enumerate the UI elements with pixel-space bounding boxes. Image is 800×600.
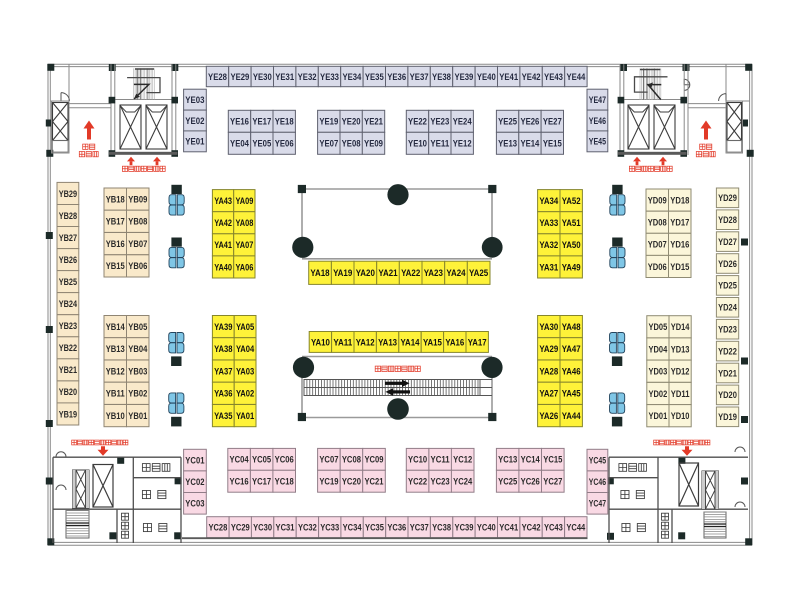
svg-text:YE04: YE04: [230, 139, 250, 149]
svg-text:YA50: YA50: [562, 240, 581, 250]
svg-text:YD23: YD23: [718, 325, 737, 335]
svg-text:YA42: YA42: [214, 218, 232, 228]
svg-text:YE18: YE18: [275, 117, 294, 127]
svg-text:YC36: YC36: [387, 523, 406, 533]
svg-text:YD17: YD17: [670, 218, 689, 228]
svg-text:YE16: YE16: [230, 117, 249, 127]
svg-text:YB25: YB25: [59, 277, 77, 287]
svg-text:YE24: YE24: [453, 117, 473, 127]
svg-text:YC11: YC11: [431, 455, 450, 465]
svg-text:YE30: YE30: [253, 72, 272, 82]
svg-text:YE03: YE03: [185, 95, 204, 105]
svg-text:YD10: YD10: [671, 411, 690, 421]
svg-text:YE17: YE17: [252, 117, 271, 127]
svg-text:YE37: YE37: [410, 72, 429, 82]
svg-text:YC30: YC30: [253, 523, 272, 533]
svg-text:YA02: YA02: [236, 389, 254, 399]
svg-text:YA07: YA07: [236, 240, 254, 250]
svg-text:YD14: YD14: [671, 322, 690, 332]
svg-text:YC04: YC04: [230, 455, 250, 465]
svg-text:YC28: YC28: [208, 523, 227, 533]
svg-text:YA34: YA34: [539, 196, 559, 206]
svg-text:YE10: YE10: [408, 139, 427, 149]
svg-text:YC29: YC29: [231, 523, 250, 533]
svg-text:YD26: YD26: [718, 259, 737, 269]
svg-text:YC25: YC25: [498, 477, 517, 487]
svg-text:YA45: YA45: [562, 389, 581, 399]
svg-text:YE31: YE31: [275, 72, 294, 82]
svg-text:YC22: YC22: [408, 477, 427, 487]
svg-text:YA52: YA52: [562, 196, 581, 206]
svg-text:YE39: YE39: [454, 72, 473, 82]
svg-text:YC19: YC19: [319, 477, 338, 487]
svg-text:YB28: YB28: [59, 211, 77, 221]
svg-text:YC47: YC47: [589, 499, 606, 509]
svg-text:YE28: YE28: [208, 72, 227, 82]
svg-text:YB29: YB29: [59, 189, 77, 199]
svg-text:YB14: YB14: [106, 322, 126, 332]
svg-text:YD21: YD21: [718, 368, 737, 378]
svg-text:YC23: YC23: [431, 477, 450, 487]
svg-text:YD13: YD13: [671, 344, 690, 354]
svg-text:YB04: YB04: [128, 344, 148, 354]
svg-text:YA12: YA12: [356, 337, 375, 347]
svg-text:YC44: YC44: [566, 523, 586, 533]
svg-text:YE22: YE22: [408, 117, 427, 127]
svg-text:YB06: YB06: [128, 261, 147, 271]
svg-text:YC33: YC33: [320, 523, 339, 533]
svg-text:YD08: YD08: [648, 218, 667, 228]
svg-text:YA11: YA11: [333, 337, 352, 347]
svg-text:YB26: YB26: [59, 255, 77, 265]
svg-text:YD11: YD11: [671, 389, 690, 399]
svg-text:YC31: YC31: [276, 523, 295, 533]
svg-text:YA38: YA38: [214, 344, 232, 354]
svg-text:YA21: YA21: [378, 268, 397, 278]
svg-text:YC39: YC39: [455, 523, 474, 533]
svg-text:YA23: YA23: [424, 268, 443, 278]
svg-text:YE45: YE45: [589, 137, 606, 147]
svg-text:YE09: YE09: [364, 139, 383, 149]
svg-text:YA09: YA09: [236, 196, 254, 206]
svg-text:YE06: YE06: [275, 139, 294, 149]
svg-text:YA26: YA26: [539, 411, 558, 421]
svg-text:YA27: YA27: [539, 389, 558, 399]
svg-text:YE02: YE02: [185, 116, 204, 126]
svg-text:YC41: YC41: [499, 523, 518, 533]
svg-text:YC16: YC16: [230, 477, 249, 487]
svg-text:YC02: YC02: [185, 477, 204, 487]
svg-text:YA29: YA29: [539, 344, 558, 354]
svg-text:YD16: YD16: [670, 240, 689, 250]
svg-text:YA06: YA06: [236, 262, 254, 272]
svg-text:YA24: YA24: [446, 268, 466, 278]
svg-text:YB15: YB15: [106, 261, 125, 271]
svg-text:YA33: YA33: [539, 218, 558, 228]
svg-text:YD01: YD01: [649, 411, 668, 421]
svg-text:YB03: YB03: [128, 366, 147, 376]
svg-text:YA18: YA18: [310, 268, 329, 278]
svg-text:YA43: YA43: [214, 196, 232, 206]
svg-text:YC08: YC08: [342, 455, 361, 465]
svg-text:YD06: YD06: [648, 262, 667, 272]
svg-text:YB01: YB01: [128, 411, 147, 421]
svg-text:YA31: YA31: [539, 262, 558, 272]
svg-text:YE25: YE25: [498, 117, 517, 127]
svg-text:YC42: YC42: [522, 523, 541, 533]
svg-text:YD27: YD27: [718, 237, 737, 247]
svg-text:YC38: YC38: [432, 523, 451, 533]
svg-text:YA48: YA48: [562, 322, 581, 332]
svg-text:YC24: YC24: [453, 477, 473, 487]
svg-text:YB21: YB21: [59, 365, 77, 375]
svg-text:YA28: YA28: [539, 366, 558, 376]
svg-text:YB08: YB08: [128, 217, 147, 227]
svg-text:YC40: YC40: [477, 523, 496, 533]
svg-text:YB18: YB18: [106, 195, 125, 205]
svg-text:YB20: YB20: [59, 387, 77, 397]
svg-text:YB13: YB13: [106, 344, 125, 354]
svg-text:YA32: YA32: [539, 240, 558, 250]
svg-text:YC13: YC13: [498, 455, 517, 465]
svg-text:YE44: YE44: [566, 72, 586, 82]
svg-text:YA01: YA01: [236, 411, 254, 421]
svg-text:YE42: YE42: [522, 72, 541, 82]
svg-text:YC03: YC03: [185, 499, 204, 509]
svg-text:YE38: YE38: [432, 72, 451, 82]
svg-text:YD28: YD28: [718, 215, 737, 225]
svg-text:YA17: YA17: [468, 337, 487, 347]
svg-text:YA25: YA25: [469, 268, 488, 278]
svg-text:YD07: YD07: [648, 240, 667, 250]
svg-text:YC15: YC15: [543, 455, 562, 465]
svg-text:YC01: YC01: [185, 455, 204, 465]
svg-text:YD04: YD04: [649, 344, 668, 354]
svg-text:YD29: YD29: [718, 193, 737, 203]
svg-text:YB27: YB27: [59, 233, 77, 243]
svg-text:YA10: YA10: [311, 337, 330, 347]
svg-text:YA51: YA51: [562, 218, 581, 228]
svg-text:YA35: YA35: [214, 411, 232, 421]
svg-text:YC07: YC07: [319, 455, 338, 465]
svg-text:YE35: YE35: [365, 72, 384, 82]
svg-text:YA44: YA44: [562, 411, 582, 421]
svg-text:YE40: YE40: [477, 72, 496, 82]
svg-text:YD20: YD20: [718, 390, 737, 400]
svg-text:YC35: YC35: [365, 523, 384, 533]
svg-text:YA03: YA03: [236, 366, 254, 376]
svg-text:YB07: YB07: [128, 239, 147, 249]
svg-text:YC34: YC34: [343, 523, 363, 533]
svg-text:YA39: YA39: [214, 322, 232, 332]
svg-text:YD25: YD25: [718, 281, 737, 291]
svg-text:YA19: YA19: [333, 268, 352, 278]
svg-text:YE43: YE43: [544, 72, 563, 82]
svg-text:YD12: YD12: [671, 367, 690, 377]
svg-text:YD18: YD18: [670, 195, 689, 205]
svg-text:YE19: YE19: [319, 117, 338, 127]
svg-text:YE07: YE07: [319, 139, 338, 149]
svg-text:YC06: YC06: [275, 455, 294, 465]
svg-text:YD02: YD02: [649, 389, 668, 399]
svg-text:YE41: YE41: [499, 72, 518, 82]
svg-text:YA40: YA40: [214, 262, 232, 272]
svg-text:YB19: YB19: [59, 409, 77, 419]
svg-text:YC17: YC17: [252, 477, 271, 487]
svg-text:YB17: YB17: [106, 217, 125, 227]
svg-text:YD03: YD03: [649, 367, 668, 377]
svg-text:YC09: YC09: [364, 455, 383, 465]
svg-text:YE23: YE23: [430, 117, 449, 127]
svg-text:YC27: YC27: [543, 477, 562, 487]
svg-text:YA22: YA22: [401, 268, 420, 278]
svg-text:YB11: YB11: [106, 389, 125, 399]
svg-text:YC12: YC12: [453, 455, 472, 465]
svg-text:YD19: YD19: [718, 412, 737, 422]
svg-text:YB09: YB09: [128, 195, 147, 205]
svg-text:YD24: YD24: [718, 303, 737, 313]
svg-text:YD22: YD22: [718, 346, 737, 356]
svg-text:YE33: YE33: [320, 72, 339, 82]
svg-text:YE01: YE01: [185, 137, 204, 147]
svg-text:YE21: YE21: [364, 117, 383, 127]
svg-text:YE47: YE47: [589, 95, 606, 105]
svg-text:YC05: YC05: [252, 455, 271, 465]
svg-text:YC32: YC32: [298, 523, 317, 533]
svg-text:YB02: YB02: [128, 389, 147, 399]
svg-text:YC26: YC26: [521, 477, 540, 487]
svg-text:YC10: YC10: [408, 455, 427, 465]
svg-text:YD09: YD09: [648, 195, 667, 205]
svg-text:YE14: YE14: [520, 139, 540, 149]
svg-text:YA41: YA41: [214, 240, 232, 250]
svg-text:YE13: YE13: [498, 139, 517, 149]
svg-text:YE05: YE05: [252, 139, 271, 149]
svg-text:YA46: YA46: [562, 366, 581, 376]
svg-text:YE27: YE27: [543, 117, 562, 127]
svg-text:YB22: YB22: [59, 343, 77, 353]
svg-text:YB24: YB24: [59, 299, 78, 309]
svg-text:YC18: YC18: [275, 477, 294, 487]
svg-text:YA15: YA15: [423, 337, 442, 347]
svg-text:YA08: YA08: [236, 218, 254, 228]
svg-text:YB05: YB05: [128, 322, 147, 332]
svg-text:YE12: YE12: [453, 139, 472, 149]
svg-text:YA37: YA37: [214, 366, 232, 376]
svg-text:YA16: YA16: [445, 337, 464, 347]
svg-text:YB10: YB10: [106, 411, 125, 421]
svg-text:YB16: YB16: [106, 239, 125, 249]
svg-text:YA05: YA05: [236, 322, 254, 332]
svg-text:YD15: YD15: [670, 262, 689, 272]
svg-text:YA20: YA20: [356, 268, 375, 278]
svg-text:YC43: YC43: [544, 523, 563, 533]
svg-text:YC46: YC46: [589, 477, 606, 487]
svg-text:YE11: YE11: [430, 139, 449, 149]
svg-text:YE26: YE26: [520, 117, 539, 127]
svg-text:YC14: YC14: [521, 455, 541, 465]
svg-text:YE32: YE32: [298, 72, 317, 82]
svg-text:YE08: YE08: [342, 139, 361, 149]
svg-text:YA14: YA14: [401, 337, 421, 347]
svg-text:YA04: YA04: [236, 344, 255, 354]
svg-text:YE46: YE46: [589, 116, 606, 126]
svg-text:YE15: YE15: [543, 139, 562, 149]
svg-text:YA36: YA36: [214, 389, 232, 399]
svg-text:YE36: YE36: [387, 72, 406, 82]
svg-text:YB23: YB23: [59, 321, 77, 331]
svg-text:YA30: YA30: [539, 322, 558, 332]
svg-text:YB12: YB12: [106, 366, 125, 376]
svg-text:YD05: YD05: [649, 322, 668, 332]
svg-text:YE20: YE20: [342, 117, 361, 127]
svg-text:YC21: YC21: [364, 477, 383, 487]
svg-text:YA47: YA47: [562, 344, 581, 354]
svg-text:YA13: YA13: [378, 337, 397, 347]
svg-text:YC37: YC37: [410, 523, 429, 533]
svg-text:YE34: YE34: [342, 72, 362, 82]
svg-text:YA49: YA49: [562, 262, 581, 272]
svg-text:YC45: YC45: [589, 455, 606, 465]
svg-text:YE29: YE29: [230, 72, 249, 82]
svg-text:YC20: YC20: [342, 477, 361, 487]
